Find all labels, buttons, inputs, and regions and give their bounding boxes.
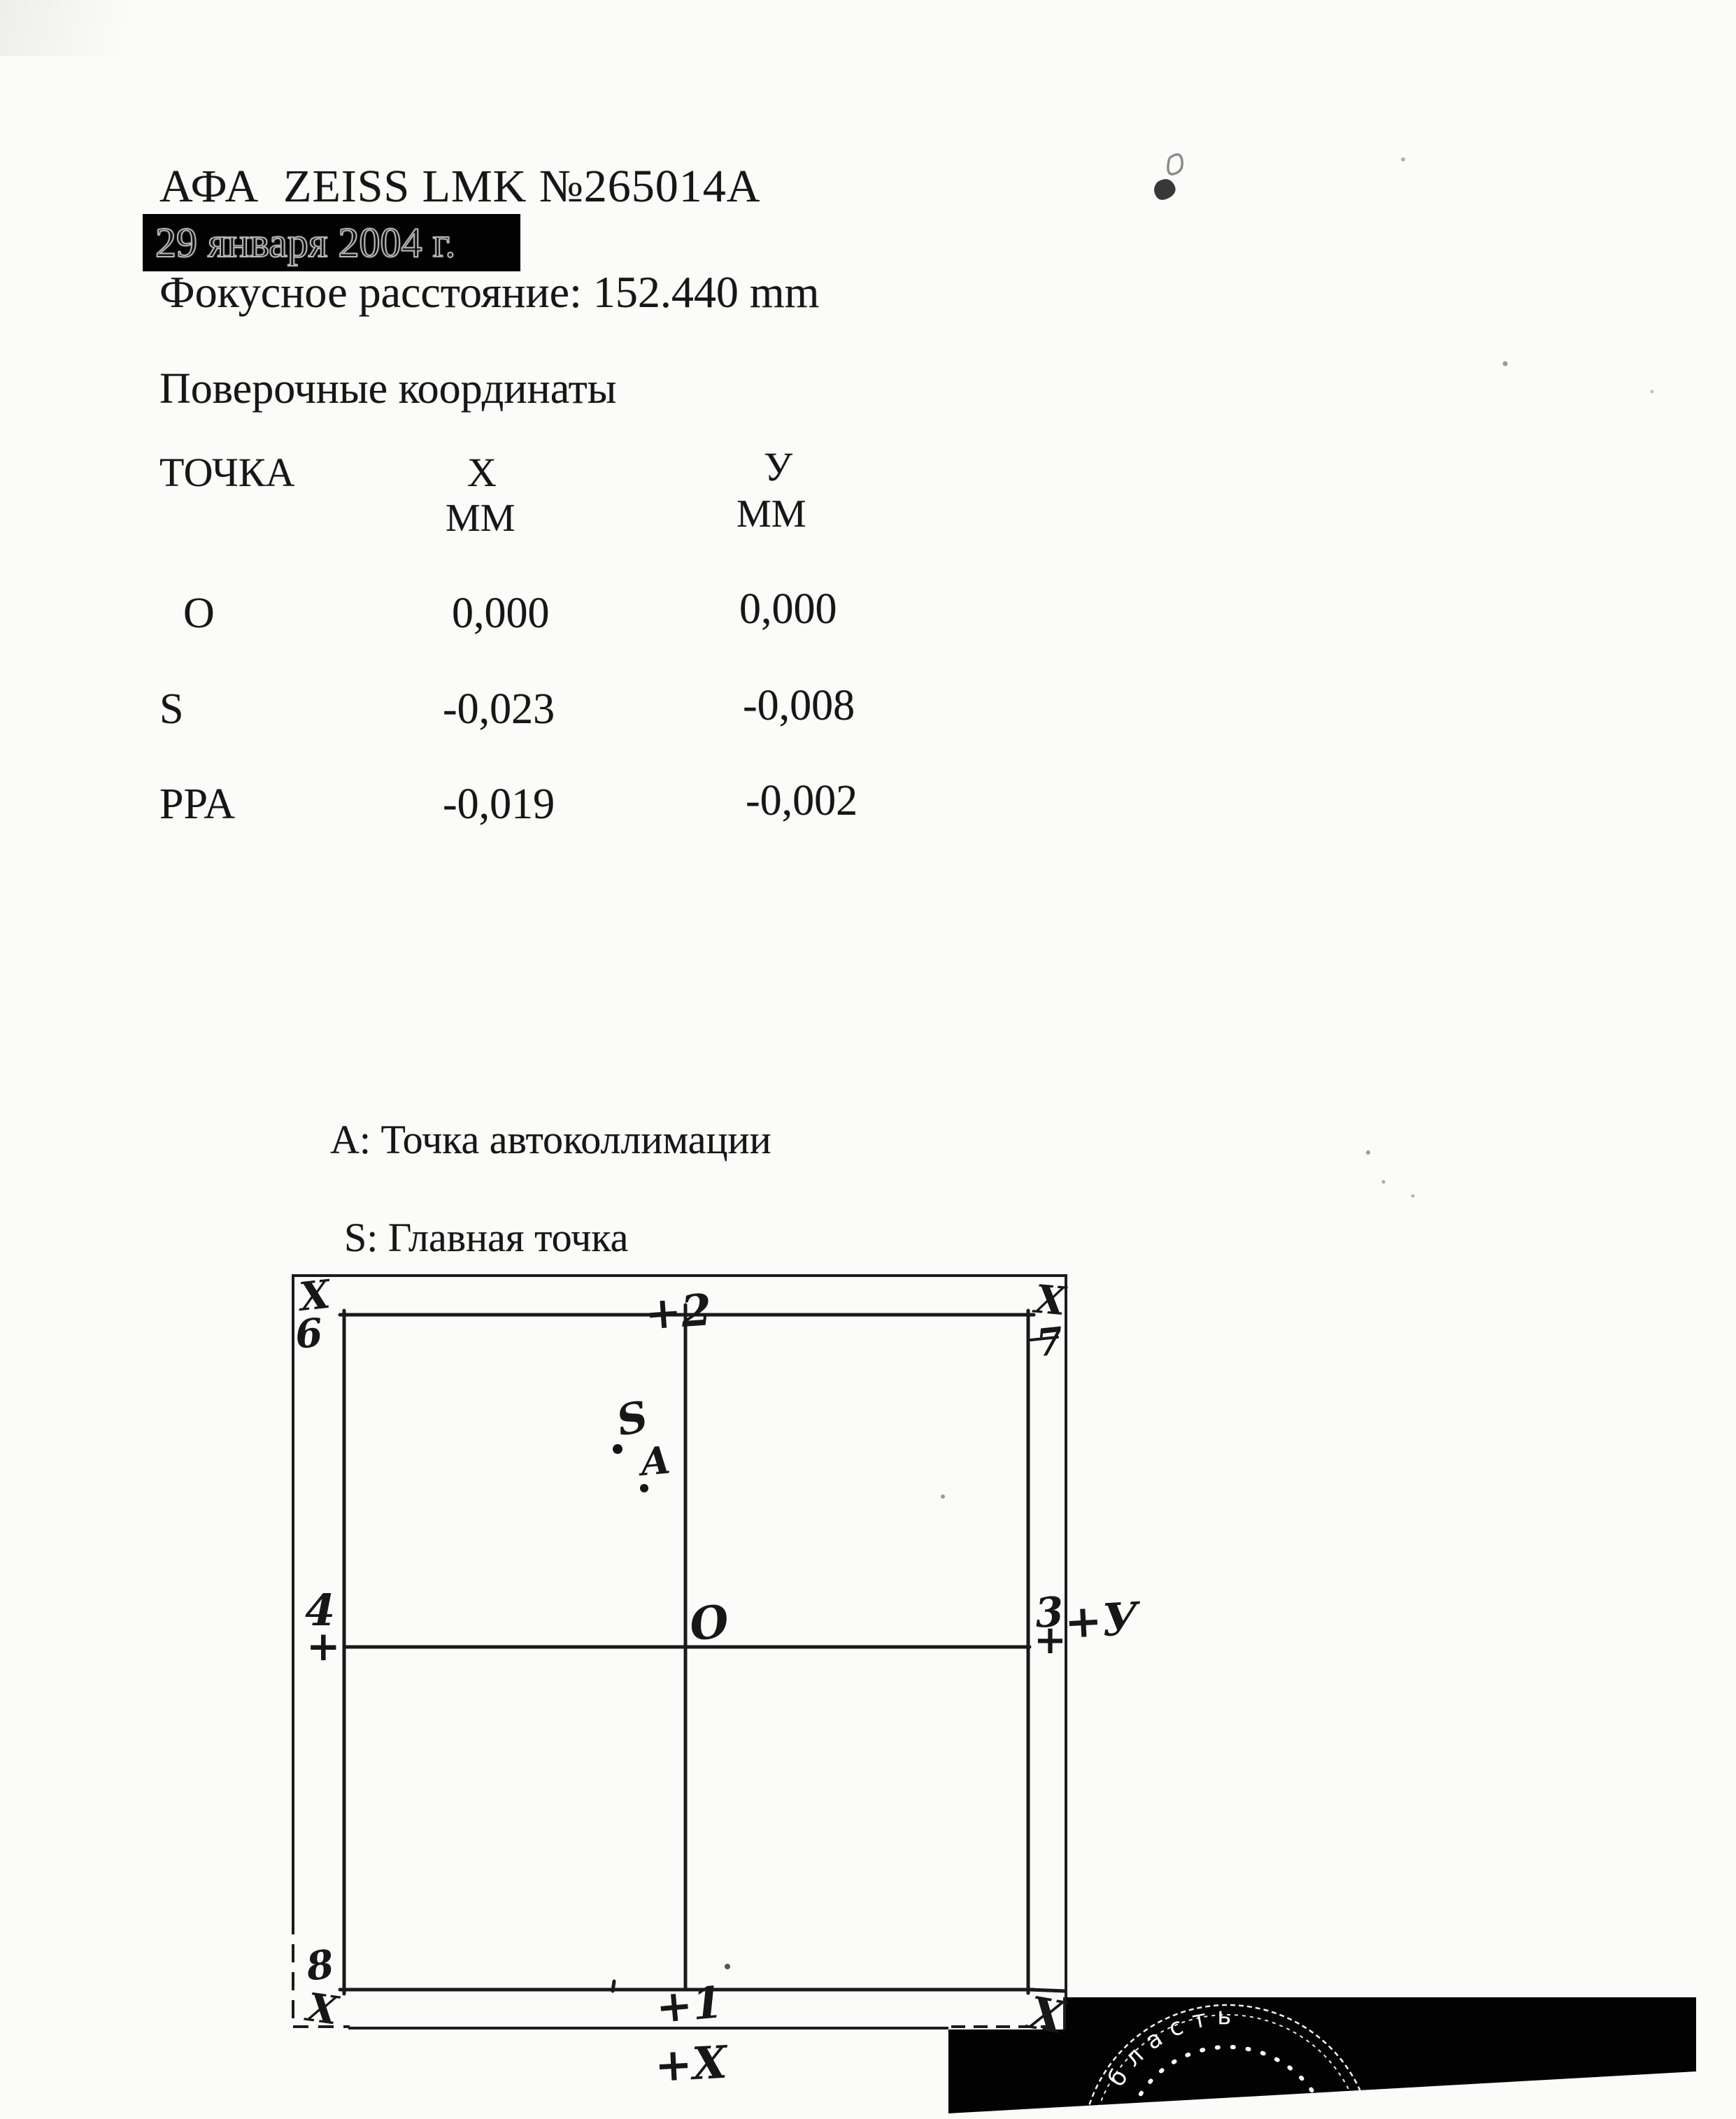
principal-point-dot: [613, 1444, 622, 1454]
fiducial-x-mark-top-right: X: [1031, 1276, 1069, 1325]
inner-frame: [340, 1311, 1065, 1994]
outer-frame: [292, 1276, 1067, 2028]
tick-plus-left: +: [306, 1622, 341, 1670]
scan-speck: [1651, 390, 1654, 394]
scanned-calibration-document: АФА ZEISS LMK №265014А 29 января 2004 г.…: [0, 0, 1736, 2119]
scan-speck: [941, 1494, 945, 1499]
corner-number-6: 6: [293, 1310, 325, 1358]
corner-number-8: 8: [303, 1941, 337, 1990]
axis-label-plus-y: +У: [1063, 1592, 1142, 1649]
scan-speck-blob: [1154, 179, 1176, 200]
tick-label-plus-1: +1: [654, 1976, 725, 2033]
center-point-label-o: O: [686, 1594, 732, 1652]
scan-speck-curl: [1168, 155, 1182, 174]
scan-speck: [1503, 362, 1508, 366]
fiducial-diagram: X 6 X 7 8 X +2 4 + 3 + +У +1 +Х O S A: [0, 0, 1736, 2119]
tick-plus-right: +: [1034, 1617, 1067, 1663]
corner-number-7: 7: [1034, 1318, 1065, 1366]
scan-specks: [725, 155, 1654, 1969]
tick-label-plus-2: +2: [643, 1284, 713, 1339]
autocollimation-point-dot: [640, 1484, 648, 1492]
scan-speck: [1366, 1150, 1370, 1155]
inner-frame-bottom-tick: [613, 1981, 614, 1991]
scan-speck: [725, 1964, 730, 1969]
principal-point-label-s: S: [613, 1392, 653, 1446]
redaction-wedge-group: бласть X: [948, 1986, 1696, 2119]
autocollimation-point-label-a: A: [635, 1437, 671, 1485]
center-axes: [344, 1305, 1030, 1990]
scan-speck: [1411, 1194, 1415, 1198]
fiducial-x-mark-bottom-left: X: [302, 1984, 343, 2034]
axis-label-plus-x: +Х: [653, 2036, 730, 2092]
scan-speck: [1401, 157, 1405, 162]
scan-speck: [1382, 1180, 1386, 1184]
